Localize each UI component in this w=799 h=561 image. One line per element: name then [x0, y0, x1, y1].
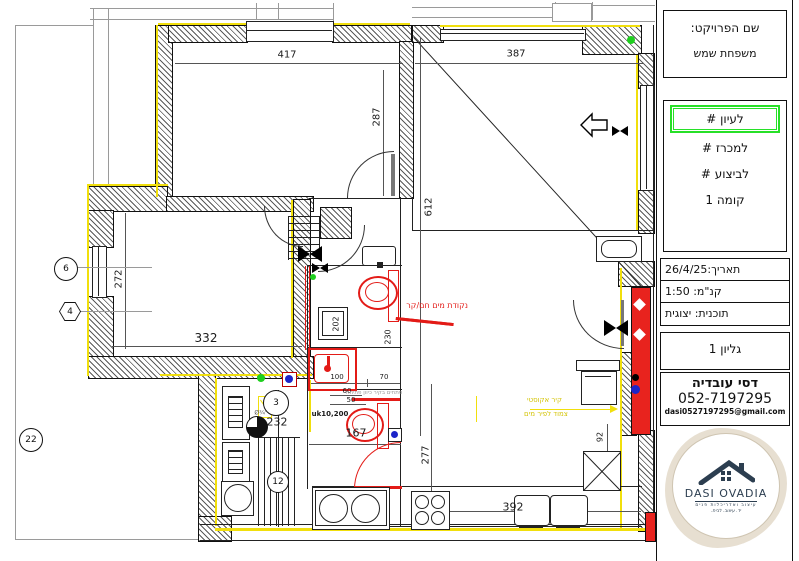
appliance-base: [519, 526, 543, 528]
window-mullion: [440, 33, 584, 34]
valve-icon: [312, 263, 328, 273]
status-dot-green: [627, 36, 635, 44]
vanity-line: [585, 376, 611, 377]
construction-line: [15, 539, 201, 540]
valve-dot-black: [632, 374, 639, 381]
appliance: [550, 495, 588, 526]
tall-unit-inner: [228, 450, 243, 474]
door-leaf: [391, 154, 395, 196]
floor-plan-sheet: { "title_block": { "project_label": "שם …: [0, 0, 799, 561]
dimension-label: 92: [596, 432, 605, 442]
construction-line: [256, 3, 257, 20]
room-line: [412, 197, 413, 230]
dimension-label: 50: [347, 396, 356, 404]
wall-segment: [198, 375, 216, 527]
designer-box: דסי עובדיה 052-7197295 dasi0527197295@gm…: [660, 372, 790, 426]
construction-line: [278, 3, 279, 20]
vanity-top: [576, 360, 620, 371]
construction-line: [90, 8, 333, 9]
ac-unit-inner: [601, 240, 637, 258]
scale-row: קנ"מ: 1:50: [661, 281, 789, 303]
designer-phone[interactable]: 052-7197295: [661, 391, 789, 407]
kitchen-sink-bowl: [319, 494, 348, 523]
dim-line: [125, 213, 126, 349]
stove: [411, 491, 450, 530]
dimension-label: 287: [372, 107, 383, 126]
dimension-label: 70: [380, 373, 389, 381]
valve-dot-blue: [285, 375, 293, 383]
dimension-label: 202: [332, 316, 341, 331]
status-box: # לעיון # למכרז # לביצוע קומה 1: [663, 100, 787, 252]
sheet-label: גליון 1: [661, 342, 789, 356]
status-option-review[interactable]: # לעיון: [673, 108, 777, 130]
annotation-openings: פתחים בקיר כיוון פתיחה: [346, 390, 402, 396]
meta-box: תאריך:26/4/25 קנ"מ: 1:50 תוכנית: יצוגית: [660, 258, 790, 326]
keynote-marker: 12: [267, 471, 289, 493]
appliance-drum: [224, 484, 252, 512]
window: [440, 29, 586, 41]
window: [246, 21, 334, 42]
wall-highlight: [476, 396, 477, 422]
room-line: [412, 230, 653, 231]
tall-unit-inner: [228, 396, 243, 428]
dimension-label: 387: [506, 49, 525, 60]
project-name: משפחת שמש: [664, 47, 786, 60]
roof-edge-box: [552, 3, 592, 22]
logo-subtitle: עיצוב ואדריכלות פנים: [695, 501, 756, 508]
toilet-tank: [388, 270, 399, 322]
dim-line: [330, 404, 366, 405]
dimension-label: 332: [195, 331, 218, 345]
annotation-acoustic-1: קיר אקוסטי: [527, 396, 562, 404]
valve-icon: [612, 126, 628, 136]
floor-label: קומה 1: [664, 187, 786, 213]
room-line: [309, 198, 401, 199]
leader-line-red: [396, 317, 454, 326]
window-mullion: [646, 85, 647, 189]
dim-line: [415, 63, 643, 64]
valve-dot-blue: [391, 431, 398, 438]
annotation-acoustic-2: צמוד לפיר מים: [524, 410, 568, 418]
marker-leader: [76, 267, 152, 268]
project-label: שם הפרויקט:: [664, 21, 786, 35]
wall-highlight: [440, 25, 640, 27]
status-highlight-box: # לעיון: [670, 105, 780, 133]
logo: DASI OVADIA עיצוב ואדריכלות פנים יד. עיצ…: [665, 428, 787, 548]
status-option-execution[interactable]: # לביצוע: [664, 161, 786, 187]
floor-plan: 417 387 287 612 272 332 202 230 100 70 6…: [0, 0, 656, 561]
wall-segment: [399, 41, 414, 199]
dim-line: [175, 63, 403, 64]
dimension-label: 230: [384, 329, 393, 344]
wall-highlight: [87, 184, 89, 376]
plan-type-row: תוכנית: יצוגית: [661, 303, 789, 324]
logo-title: DASI OVADIA: [685, 487, 768, 500]
wall-segment: [88, 296, 114, 360]
door-arc-red: [354, 442, 401, 489]
wall-highlight: [156, 25, 158, 197]
valve-icon: [604, 320, 628, 336]
wall-segment: [168, 25, 248, 43]
dim-line: [607, 424, 608, 454]
door-arc: [347, 151, 394, 198]
construction-line: [592, 5, 655, 6]
dimension-label: uk10,200: [312, 410, 349, 418]
room-line: [200, 540, 655, 541]
dim-line: [112, 346, 302, 347]
window-mullion: [246, 30, 332, 31]
toilet-tank: [377, 403, 389, 449]
dimension-label: 392: [503, 501, 524, 514]
sheet-box: גליון 1: [660, 332, 790, 370]
red-corner: [645, 512, 656, 542]
house-roof-icon: [697, 459, 755, 485]
wall-highlight: [88, 184, 168, 186]
keynote-marker: 6: [54, 257, 78, 281]
project-name-box: שם הפרויקט: משפחת שמש: [663, 10, 787, 78]
plumbing-line: [352, 398, 400, 401]
shaft-xbox: [583, 451, 621, 491]
dimension-label: 167: [346, 427, 367, 440]
keynote-marker-hex: 4: [59, 302, 81, 321]
dimension-label: 417: [277, 50, 296, 61]
window-mullion: [98, 246, 99, 296]
status-dot-green: [310, 274, 316, 280]
keynote-marker: 3: [263, 390, 289, 416]
dimension-label: 612: [424, 197, 435, 216]
dimension-label: 232: [267, 416, 288, 429]
window: [92, 246, 107, 298]
leader-arrowhead: [610, 405, 618, 413]
dimension-label: 277: [421, 445, 432, 464]
wall-highlight: [636, 55, 638, 230]
dimension-label: 100: [330, 373, 343, 381]
status-option-tender[interactable]: # למכרז: [664, 135, 786, 161]
valve-dot-blue: [631, 385, 640, 394]
designer-email[interactable]: dasi0527197295@gmail.com: [661, 407, 789, 416]
appliance-base: [556, 526, 580, 528]
construction-line: [15, 25, 16, 540]
wall-segment: [88, 210, 114, 248]
dim-line: [367, 379, 368, 387]
dim-line: [420, 38, 421, 436]
plumbing-line: [305, 266, 310, 350]
sink-faucet: [377, 262, 383, 268]
shower-drain: [324, 365, 331, 372]
dimension-label: 272: [114, 269, 125, 288]
kitchen-sink-bowl: [351, 494, 380, 523]
designer-name: דסי עובדיה: [661, 376, 789, 391]
marker-leader: [80, 311, 152, 312]
direction-arrow-icon: [578, 110, 610, 140]
status-dot-green: [257, 374, 265, 382]
construction-line: [90, 19, 333, 20]
date-row: תאריך:26/4/25: [661, 259, 789, 281]
annotation-water-point: נקודת מים חם/קר: [398, 301, 468, 310]
title-block: שם הפרויקט: משפחת שמש # לעיון # למכרז # …: [656, 0, 793, 561]
toilet-inner: [365, 282, 389, 302]
plan-border: [653, 25, 654, 530]
wall-highlight: [215, 378, 217, 526]
keynote-marker: 22: [19, 428, 43, 452]
construction-line: [592, 21, 655, 22]
construction-line: [108, 8, 109, 188]
construction-line: [15, 25, 93, 26]
valve-icon: [298, 246, 322, 262]
fan-symbol: [246, 416, 268, 438]
logo-tagline: יד. עיצוב. לבית.: [711, 509, 741, 514]
construction-line: [333, 3, 334, 23]
construction-line: [93, 8, 94, 188]
